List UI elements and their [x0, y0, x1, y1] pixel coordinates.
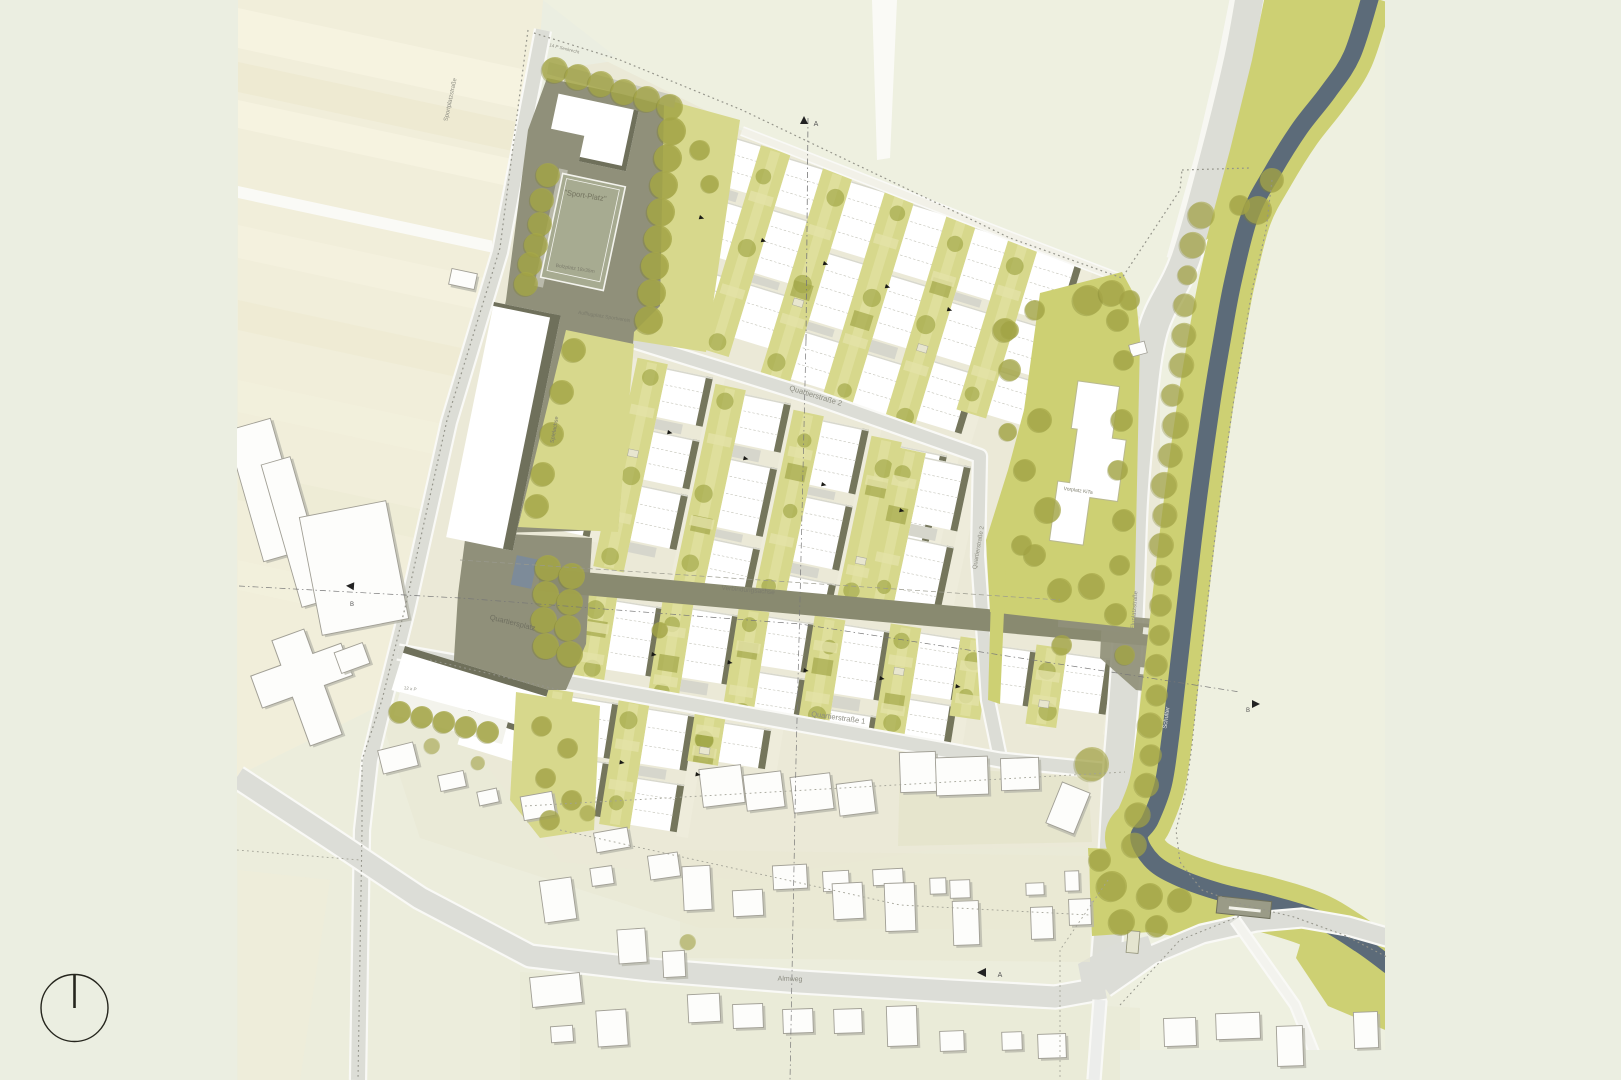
svg-text:Almweg: Almweg — [777, 976, 802, 984]
svg-text:B: B — [350, 602, 354, 608]
svg-text:A: A — [998, 972, 1003, 979]
svg-text:A: A — [814, 121, 819, 128]
svg-text:B: B — [1246, 708, 1250, 714]
